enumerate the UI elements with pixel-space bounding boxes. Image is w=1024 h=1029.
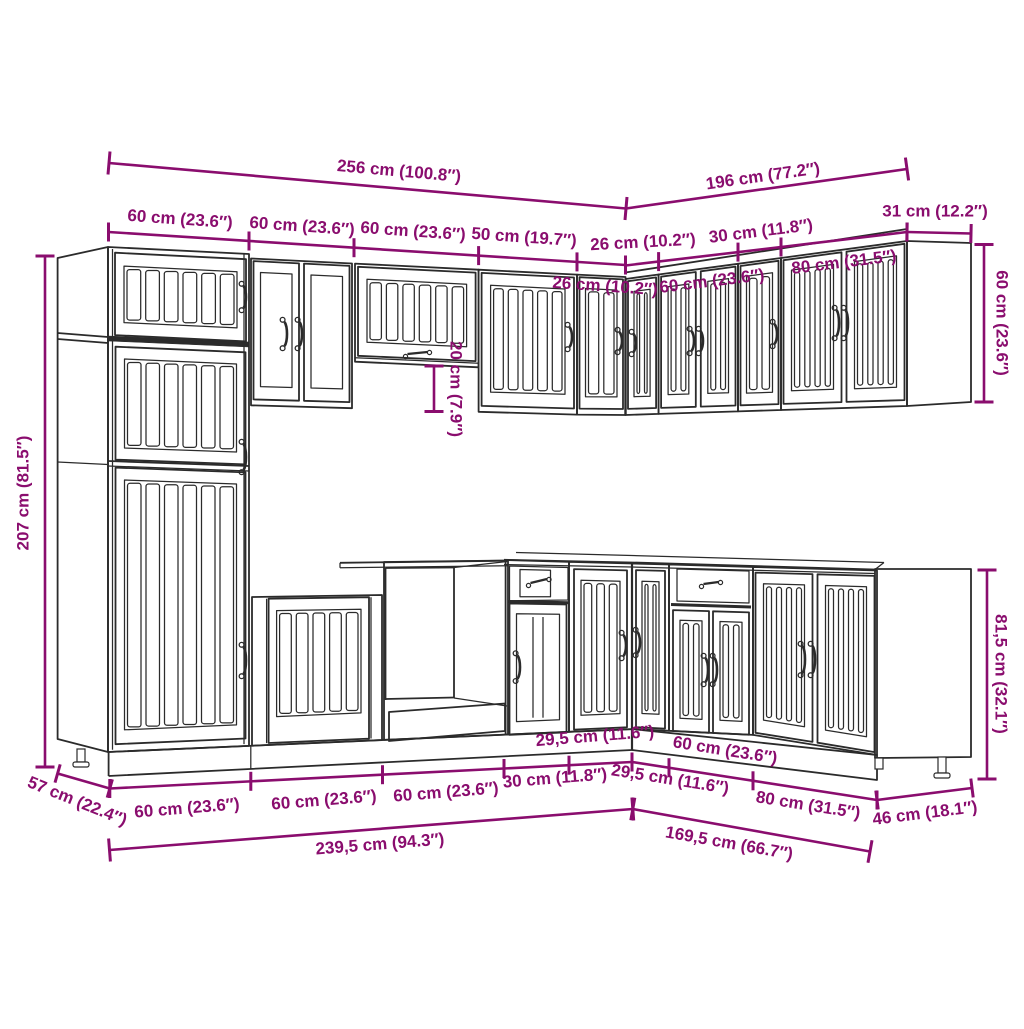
svg-text:207 cm (81.5″): 207 cm (81.5″): [13, 436, 32, 551]
svg-text:20 cm (7.9″): 20 cm (7.9″): [447, 341, 466, 437]
svg-text:31 cm (12.2″): 31 cm (12.2″): [882, 201, 987, 220]
svg-text:81,5 cm (32.1″): 81,5 cm (32.1″): [992, 614, 1011, 734]
svg-text:60 cm (23.6″): 60 cm (23.6″): [993, 270, 1012, 375]
